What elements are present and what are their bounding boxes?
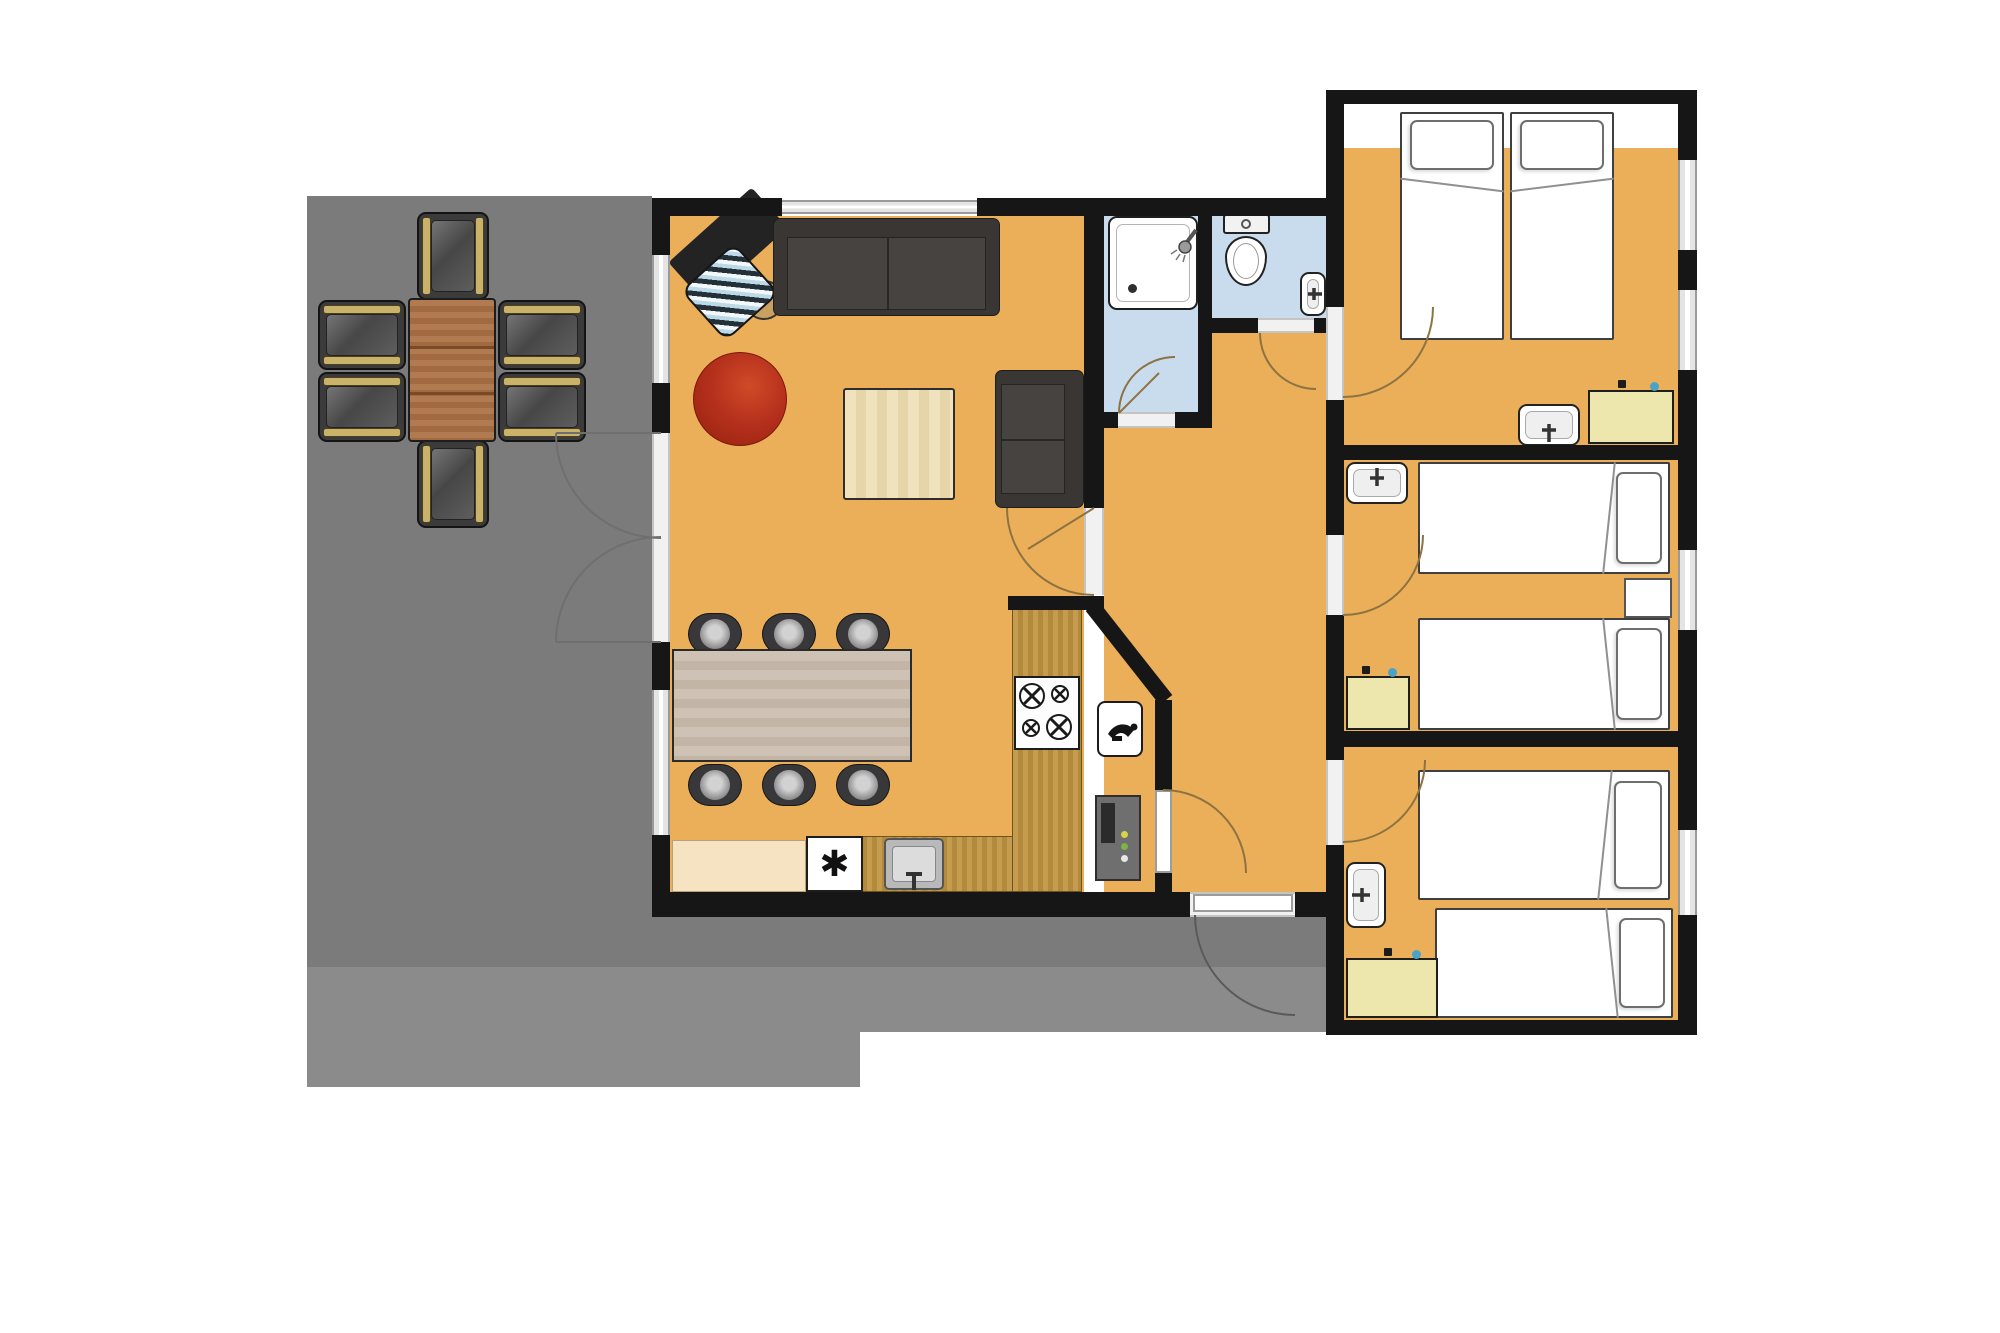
pillow — [1616, 472, 1662, 564]
dining-stool — [688, 764, 742, 806]
wall — [1008, 596, 1104, 610]
coffee-table — [843, 388, 955, 500]
pillow — [1619, 918, 1665, 1008]
wall — [1104, 198, 1344, 216]
duvet-fold — [1602, 462, 1616, 574]
accessory — [1618, 380, 1626, 388]
wall — [652, 383, 670, 433]
armrest — [323, 377, 401, 386]
armrest — [475, 217, 484, 295]
wall — [1344, 445, 1678, 460]
boiler-panel — [1101, 803, 1115, 843]
bed — [1435, 908, 1673, 1018]
armrest — [323, 356, 401, 365]
duvet-fold — [1597, 770, 1613, 899]
cabinet — [1588, 390, 1674, 444]
bedroom-basin — [1518, 404, 1580, 446]
bed — [1418, 462, 1670, 574]
bed — [1418, 618, 1670, 730]
wall — [1678, 915, 1697, 1035]
outdoor-chair — [318, 300, 406, 370]
accessory — [1384, 948, 1392, 956]
outdoor-chair — [318, 372, 406, 442]
sofa-seat — [1001, 384, 1065, 494]
wall — [1326, 845, 1344, 1035]
dining-stool — [836, 764, 890, 806]
wall — [1198, 198, 1212, 412]
sofa-seat — [787, 237, 986, 310]
armrest — [475, 445, 484, 523]
armrest — [323, 428, 401, 437]
wall — [1155, 700, 1172, 790]
bedroom-basin — [1346, 862, 1386, 928]
wall — [1326, 1020, 1697, 1035]
pillow — [1614, 781, 1662, 889]
outdoor-chair — [498, 300, 586, 370]
bedroom1-door-opening — [1326, 307, 1344, 400]
chair-seat — [326, 386, 398, 428]
chair-seat — [326, 314, 398, 356]
duvet-fold — [1605, 908, 1618, 1018]
duvet-fold — [1400, 178, 1503, 193]
closet-door-leaf — [1155, 790, 1172, 873]
indicator-light — [1121, 843, 1128, 850]
wall — [652, 198, 782, 216]
wall — [1326, 400, 1344, 535]
living-hall-door-opening — [1084, 508, 1104, 595]
freezer: ✱ — [806, 836, 863, 892]
indicator-light — [1121, 831, 1128, 838]
kitchen-counter — [1012, 608, 1082, 892]
wall — [1104, 412, 1118, 428]
wall — [1326, 615, 1344, 760]
window — [1678, 830, 1697, 915]
indicator-light — [1121, 855, 1128, 862]
terrace-door-opening — [652, 433, 670, 642]
terrace-walkway — [307, 967, 860, 1087]
kitchen-worktop — [672, 840, 806, 892]
window — [652, 690, 670, 835]
bedroom-basin — [1346, 462, 1408, 504]
wall — [652, 198, 670, 255]
sofa — [773, 218, 1000, 316]
floor-plan: ✱ — [0, 0, 2000, 1333]
wc-door-opening — [1258, 318, 1314, 333]
wall — [1678, 250, 1697, 290]
wall — [1326, 90, 1697, 104]
toilet-tank — [1223, 214, 1270, 234]
outdoor-chair — [417, 440, 489, 528]
accessory — [1650, 382, 1659, 391]
freezer-glyph: ✱ — [819, 843, 849, 885]
armrest — [503, 305, 581, 314]
duvet-fold — [1510, 178, 1613, 193]
dining-stool — [762, 764, 816, 806]
entrance-door-leaf — [1193, 894, 1293, 912]
outdoor-chair — [498, 372, 586, 442]
dining-table — [672, 649, 912, 762]
outdoor-table — [408, 298, 496, 442]
pillow — [1616, 628, 1662, 720]
chair-seat — [506, 386, 578, 428]
cabinet — [1346, 676, 1410, 730]
wc-basin — [1300, 272, 1326, 316]
armrest — [503, 428, 581, 437]
chair-seat — [431, 448, 475, 520]
wall — [1084, 198, 1104, 508]
duvet-fold — [1602, 618, 1616, 730]
pillow — [1520, 120, 1604, 170]
wall — [652, 642, 670, 690]
wall — [1212, 318, 1258, 333]
armrest — [503, 377, 581, 386]
armrest — [422, 217, 431, 295]
bedroom3-door-opening — [1326, 760, 1344, 845]
pillow — [1410, 120, 1494, 170]
window — [652, 255, 670, 383]
shower-door-opening — [1118, 412, 1175, 428]
armrest — [422, 445, 431, 523]
wall — [1678, 370, 1697, 550]
chair-seat — [506, 314, 578, 356]
wall — [1344, 731, 1678, 747]
shower-drain — [1128, 284, 1137, 293]
shower-tray — [1108, 216, 1198, 310]
armchair-red — [693, 352, 787, 446]
nightstand — [1624, 578, 1672, 618]
bedroom2-door-opening — [1326, 535, 1344, 615]
boiler — [1095, 795, 1141, 881]
armrest — [503, 356, 581, 365]
window — [782, 200, 977, 214]
window — [1678, 550, 1697, 630]
accessory — [1362, 666, 1370, 674]
chair-seat — [431, 220, 475, 292]
armrest — [323, 305, 401, 314]
terrace-walkway — [860, 967, 1326, 1032]
water-tap-unit — [1097, 701, 1143, 757]
bed — [1400, 112, 1504, 340]
accessory — [1388, 668, 1397, 677]
wall — [1155, 873, 1172, 892]
cabinet — [1346, 958, 1438, 1018]
stove — [1014, 676, 1080, 750]
wall — [1175, 412, 1212, 428]
accessory — [1412, 950, 1421, 959]
bed — [1418, 770, 1670, 900]
wall — [1678, 630, 1697, 830]
outdoor-chair — [417, 212, 489, 300]
bed — [1510, 112, 1614, 340]
window — [1678, 160, 1697, 250]
window — [1678, 290, 1697, 370]
wall — [1678, 90, 1697, 160]
kitchen-sink — [884, 838, 944, 890]
sofa — [995, 370, 1084, 508]
wall — [1326, 90, 1344, 307]
